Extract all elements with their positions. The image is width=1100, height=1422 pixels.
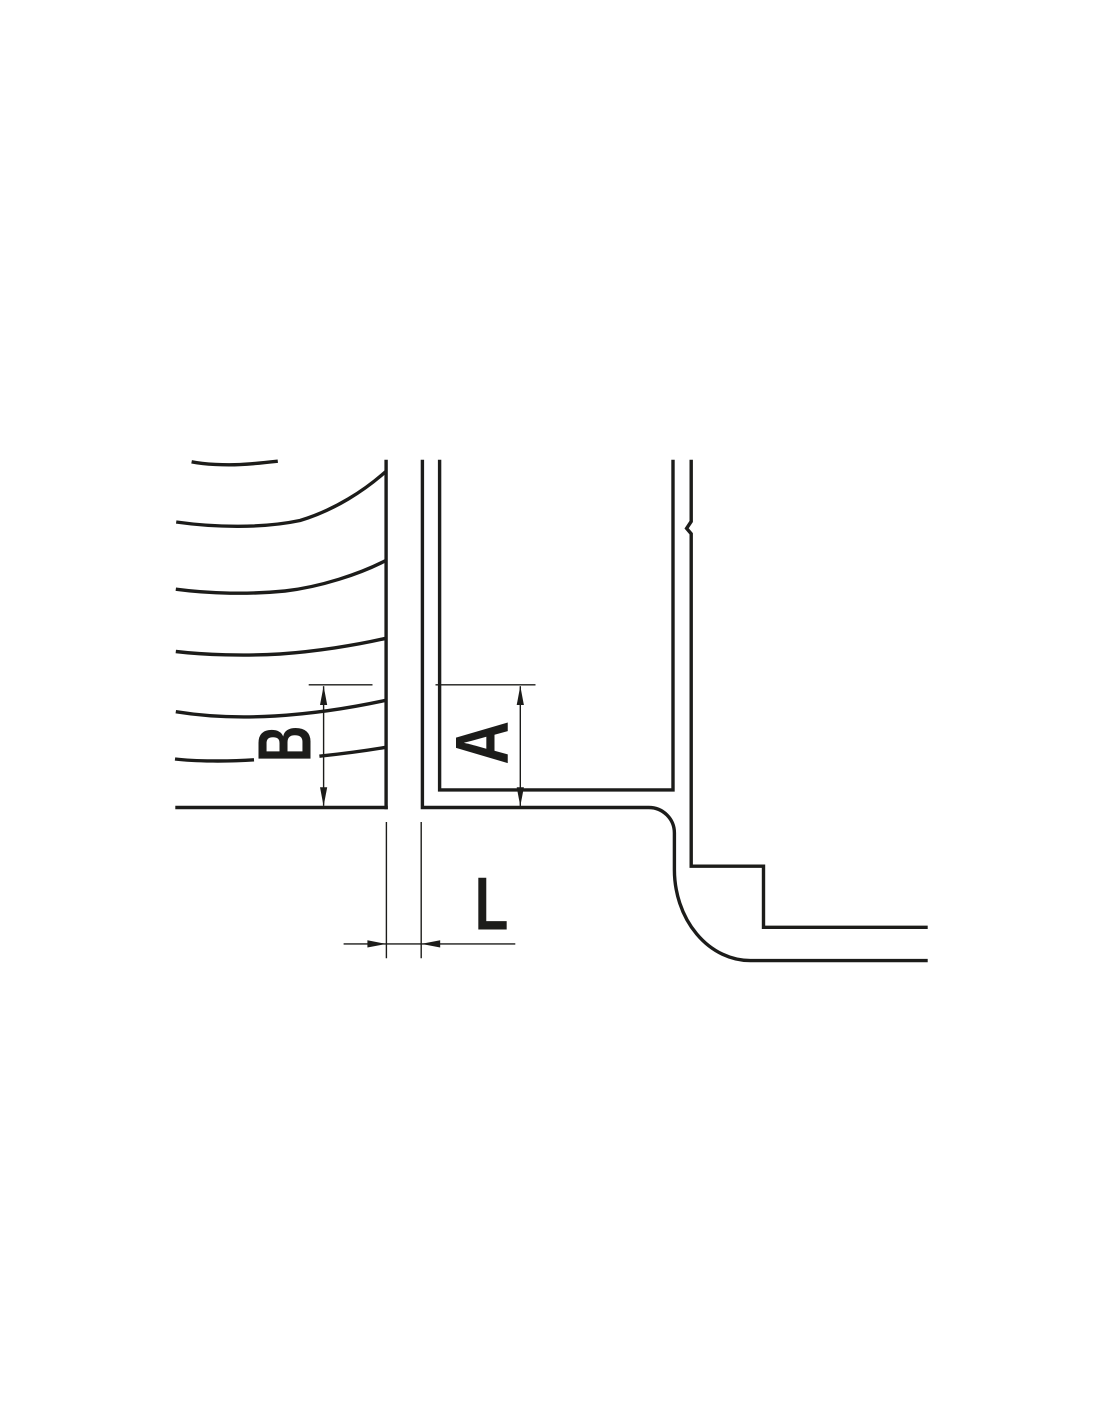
svg-text:B: B <box>242 726 327 762</box>
svg-text:A: A <box>440 721 524 765</box>
svg-text:L: L <box>475 861 509 945</box>
